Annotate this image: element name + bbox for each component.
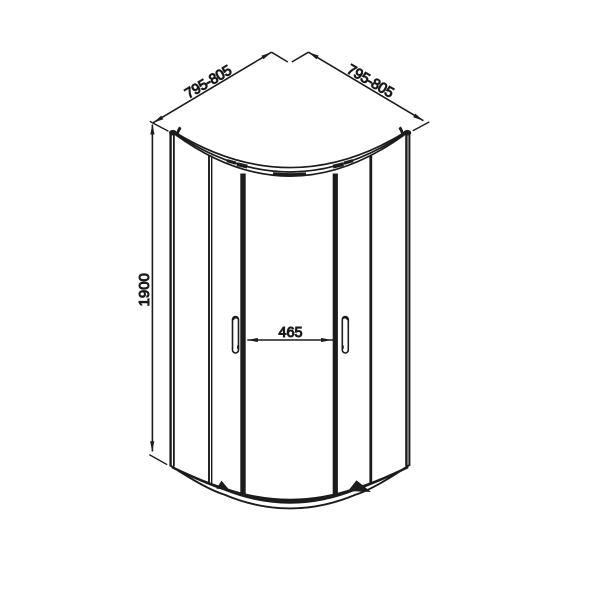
svg-text:795-805: 795-805 — [344, 62, 396, 102]
svg-text:465: 465 — [278, 325, 302, 341]
svg-text:1900: 1900 — [136, 273, 153, 306]
svg-text:795-805: 795-805 — [182, 63, 234, 103]
